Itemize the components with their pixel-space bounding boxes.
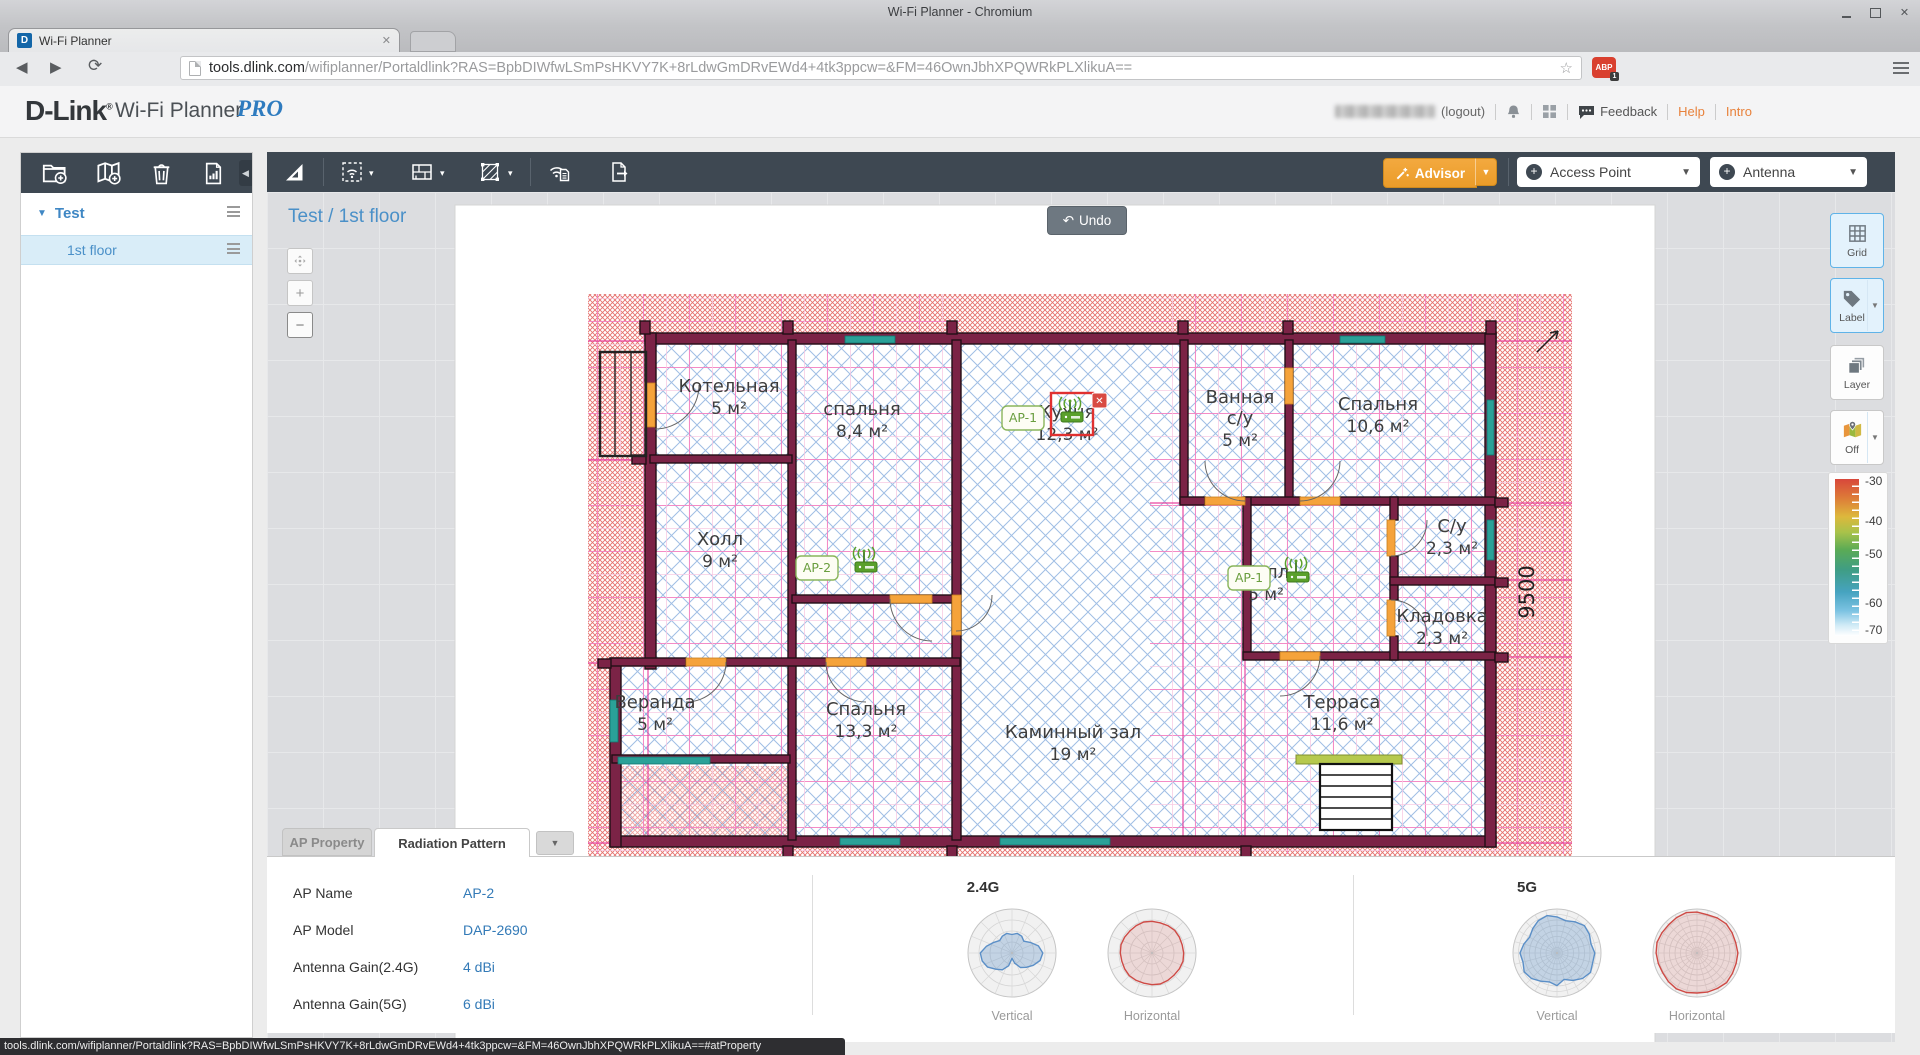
advisor-button[interactable]: Advisor <box>1383 158 1477 188</box>
tree-caret-icon[interactable]: ▼ <box>37 208 47 219</box>
svg-text:✕: ✕ <box>1095 396 1103 407</box>
band-title-24g: 2.4G <box>953 879 1013 896</box>
undo-button[interactable]: ↶Undo <box>1047 206 1127 235</box>
plan-dimension: 9500 <box>1515 565 1539 618</box>
sidebar-toolbar: ◀ <box>21 153 252 193</box>
app-title: Wi-Fi Planner <box>115 99 242 123</box>
svg-text:Холл: Холл <box>697 529 743 550</box>
heatmap-off-button[interactable]: Off ▼ <box>1830 410 1884 465</box>
svg-text:AP-1: AP-1 <box>1009 410 1037 425</box>
delete-trash-icon[interactable] <box>149 160 174 187</box>
vertical-label: Vertical <box>957 1009 1067 1023</box>
svg-text:Кладовка: Кладовка <box>1396 606 1487 627</box>
breadcrumb[interactable]: Test / 1st floor <box>288 206 406 228</box>
add-access-point-icon: + <box>1526 164 1542 180</box>
antenna-caret-icon: ▼ <box>1848 167 1858 178</box>
sidebar-collapse-icon[interactable]: ◀ <box>239 160 252 186</box>
ap-delete-icon[interactable]: ✕ <box>1092 393 1107 408</box>
svg-text:С/у: С/у <box>1437 516 1467 537</box>
svg-text:5 м²: 5 м² <box>1222 431 1258 451</box>
project-name[interactable]: Test <box>55 205 227 222</box>
app-edition: PRO <box>237 96 283 122</box>
floor-menu-icon[interactable] <box>227 243 240 257</box>
tab-ap-property[interactable]: AP Property <box>282 828 372 856</box>
svg-text:Спальня: Спальня <box>826 699 906 720</box>
tab-title: Wi-Fi Planner <box>39 34 382 48</box>
browser-menu-icon[interactable] <box>1893 62 1909 77</box>
field-gain-5: Antenna Gain(5G)6 dBi <box>293 996 407 1016</box>
dlink-favicon-icon: D <box>17 33 32 48</box>
svg-text:8,4 м²: 8,4 м² <box>836 422 888 442</box>
polar-chart-5g-horizontal <box>1642 898 1752 1008</box>
bell-icon[interactable] <box>1506 104 1521 120</box>
forward-icon[interactable]: ▶ <box>50 58 62 76</box>
logout-link[interactable]: (logout) <box>1441 104 1485 119</box>
grid-icon <box>1846 222 1869 245</box>
svg-text:2,3 м²: 2,3 м² <box>1426 539 1478 559</box>
apps-grid-icon[interactable] <box>1542 104 1557 119</box>
field-ap-name: AP NameAP-2 <box>293 885 353 905</box>
wall-caret-icon[interactable]: ▾ <box>440 168 445 179</box>
new-floor-map-icon[interactable] <box>95 160 122 187</box>
dlink-logo: D-Link® <box>25 95 112 127</box>
ap-name-value[interactable]: AP-2 <box>463 885 494 901</box>
vertical-label: Vertical <box>1502 1009 1612 1023</box>
tab-radiation-pattern[interactable]: Radiation Pattern <box>374 828 530 857</box>
floor-tree-item-selected[interactable]: 1st floor <box>21 235 252 265</box>
svg-text:13,3 м²: 13,3 м² <box>835 722 898 742</box>
polar-chart-24g-vertical <box>957 898 1067 1008</box>
wifi-coverage-tool-icon[interactable] <box>340 160 364 184</box>
window-title: Wi-Fi Planner - Chromium <box>0 5 1920 19</box>
signal-strength-scale: -30 -40 -50 -60 -70 <box>1828 472 1888 644</box>
svg-text:с/у: с/у <box>1227 408 1254 429</box>
access-point-dropdown[interactable]: + Access Point ▼ <box>1517 157 1700 187</box>
svg-text:19 м²: 19 м² <box>1050 745 1097 765</box>
magic-wand-icon <box>1395 166 1410 181</box>
new-project-folder-icon[interactable] <box>41 160 68 187</box>
maximize-icon[interactable] <box>1866 4 1885 21</box>
status-bar: tools.dlink.com/wifiplanner/Portaldlink?… <box>0 1038 845 1055</box>
browser-navbar: ◀ ▶ ⟳ tools.dlink.com/wifiplanner/Portal… <box>0 52 1920 87</box>
svg-text:Спальня: Спальня <box>1338 394 1418 415</box>
horizontal-label: Horizontal <box>1097 1009 1207 1023</box>
url-text[interactable]: tools.dlink.com/wifiplanner/Portaldlink?… <box>209 60 1554 76</box>
layer-icon <box>1845 354 1868 377</box>
reload-icon[interactable]: ⟳ <box>88 56 102 76</box>
wall-tool-icon[interactable] <box>410 160 434 184</box>
access-point-caret-icon: ▼ <box>1681 167 1691 178</box>
label-toggle-button[interactable]: Label ▼ <box>1830 278 1884 333</box>
polar-chart-24g-horizontal <box>1097 898 1207 1008</box>
report-icon[interactable] <box>201 160 226 187</box>
close-icon[interactable]: ✕ <box>1895 4 1914 21</box>
antenna-dropdown[interactable]: + Antenna ▼ <box>1710 157 1867 187</box>
adblock-icon[interactable]: ABP 1 <box>1592 57 1616 78</box>
bookmark-star-icon[interactable]: ☆ <box>1560 59 1573 77</box>
add-antenna-icon: + <box>1719 164 1735 180</box>
project-tree-item[interactable]: ▼ Test <box>21 199 252 227</box>
field-ap-model: AP ModelDAP-2690 <box>293 922 353 942</box>
svg-text:Ванная: Ванная <box>1206 387 1275 408</box>
zoom-fit-button[interactable] <box>287 248 313 274</box>
area-tool-icon[interactable] <box>478 160 502 184</box>
browser-tab[interactable]: D Wi-Fi Planner ✕ <box>8 28 400 52</box>
project-menu-icon[interactable] <box>227 206 240 220</box>
intro-link[interactable]: Intro <box>1726 104 1752 119</box>
new-tab-button[interactable] <box>410 31 456 52</box>
project-sidebar: ◀ ▼ Test 1st floor <box>20 152 253 1038</box>
panel-tabs-caret-icon[interactable]: ▼ <box>536 831 574 855</box>
browser-tabbar: D Wi-Fi Planner ✕ <box>0 26 1920 52</box>
drawing-toolbar: ▾ ▾ ▾ Advisor ▼ + Access Point ▼ + Anten… <box>267 152 1895 192</box>
svg-text:10,6 м²: 10,6 м² <box>1347 417 1410 437</box>
zoom-in-button[interactable]: + <box>287 280 313 306</box>
tab-close-icon[interactable]: ✕ <box>382 34 391 47</box>
svg-text:Веранда: Веранда <box>614 692 695 713</box>
url-bar[interactable]: tools.dlink.com/wifiplanner/Portaldlink?… <box>180 56 1582 80</box>
app-header: D-Link® Wi-Fi Planner PRO (logout) Feedb… <box>0 86 1920 138</box>
floor-name[interactable]: 1st floor <box>67 242 227 258</box>
band-title-5g: 5G <box>1497 879 1557 896</box>
gain-5-value[interactable]: 6 dBi <box>463 996 495 1012</box>
undo-icon: ↶ <box>1063 213 1074 229</box>
label-tag-icon <box>1840 287 1863 310</box>
svg-text:AP-2: AP-2 <box>803 560 831 575</box>
page-icon <box>189 61 201 76</box>
heatmap-caret-icon[interactable]: ▼ <box>1867 412 1882 463</box>
svg-text:Каминный зал: Каминный зал <box>1005 722 1141 743</box>
help-link[interactable]: Help <box>1678 104 1705 119</box>
window-titlebar[interactable]: Wi-Fi Planner - Chromium ✕ <box>0 0 1920 27</box>
coverage-map-icon <box>1841 419 1864 442</box>
polar-chart-5g-vertical <box>1502 898 1612 1008</box>
zoom-out-button[interactable]: − <box>287 312 313 338</box>
grid-toggle-button[interactable]: Grid <box>1830 213 1884 268</box>
layer-button[interactable]: Layer <box>1830 345 1884 400</box>
username-redacted <box>1335 105 1435 118</box>
svg-text:спальня: спальня <box>823 399 900 420</box>
export-icon[interactable] <box>608 160 632 184</box>
area-caret-icon[interactable]: ▾ <box>508 168 513 179</box>
feedback-bubble-icon <box>1578 104 1595 120</box>
wifi-report-icon[interactable] <box>548 160 572 184</box>
radiation-pattern-panel: AP NameAP-2 AP ModelDAP-2690 Antenna Gai… <box>267 856 1895 1033</box>
feedback-link[interactable]: Feedback <box>1600 104 1657 119</box>
svg-text:5 м²: 5 м² <box>637 715 673 735</box>
advisor-caret-icon[interactable]: ▼ <box>1475 158 1497 186</box>
field-gain-24: Antenna Gain(2.4G)4 dBi <box>293 959 418 979</box>
svg-text:9 м²: 9 м² <box>702 552 738 572</box>
horizontal-label: Horizontal <box>1642 1009 1752 1023</box>
measure-tool-icon[interactable] <box>282 160 306 184</box>
svg-text:AP-1: AP-1 <box>1235 570 1263 585</box>
svg-text:2,3 м²: 2,3 м² <box>1416 629 1468 649</box>
svg-text:Терраса: Терраса <box>1303 692 1381 713</box>
svg-text:11,6 м²: 11,6 м² <box>1311 715 1374 735</box>
screen: Wi-Fi Planner - Chromium ✕ D Wi-Fi Plann… <box>0 0 1920 1055</box>
svg-text:Котельная: Котельная <box>678 376 779 397</box>
wifi-coverage-caret-icon[interactable]: ▾ <box>369 168 374 179</box>
ap-model-value[interactable]: DAP-2690 <box>463 922 528 938</box>
svg-text:5 м²: 5 м² <box>711 399 747 419</box>
gain-24-value[interactable]: 4 dBi <box>463 959 495 975</box>
label-caret-icon[interactable]: ▼ <box>1867 280 1882 331</box>
minimize-icon[interactable] <box>1837 4 1856 21</box>
back-icon[interactable]: ◀ <box>16 58 28 76</box>
